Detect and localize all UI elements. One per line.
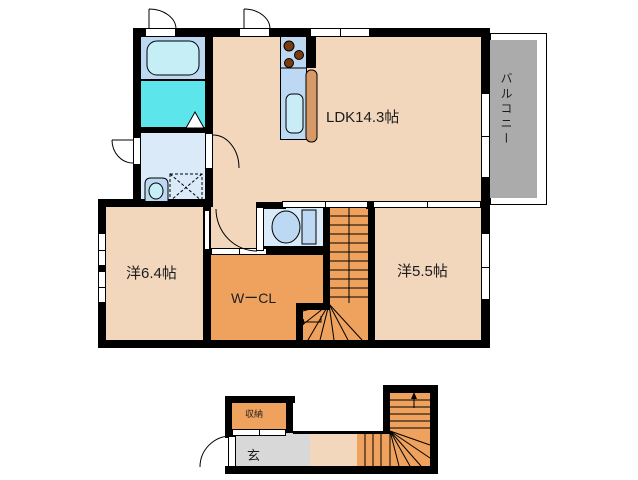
- window-ldk-balcony: [481, 93, 490, 178]
- window-west64-left-b: [98, 271, 106, 303]
- wall-west64-top: [98, 199, 213, 207]
- hall-1f: [310, 431, 357, 468]
- hall-2f: [211, 201, 256, 249]
- bath-floor: [141, 81, 205, 127]
- casement-arc-kitchen-icon: [244, 9, 270, 29]
- stairs-2f: [330, 207, 368, 340]
- sliding-door-west55: [373, 201, 481, 208]
- door-leaf-washroom: [205, 133, 213, 169]
- casement-window-washroom: [133, 137, 141, 165]
- window-ldk-top: [310, 28, 370, 37]
- room-bath: [141, 37, 205, 81]
- window-west64-left-a: [98, 233, 106, 266]
- line-tub-floor: [141, 79, 205, 81]
- stairs-1f-upper: [390, 393, 430, 468]
- casement-window-bath: [145, 28, 176, 37]
- wall-left-upper: [133, 28, 141, 206]
- door-arc-entrance: [200, 436, 231, 467]
- walk-in-closet-label: WーCL: [231, 288, 276, 308]
- wall-right: [481, 28, 490, 348]
- casement-window-kitchen: [239, 28, 270, 37]
- kitchen-counter: [280, 36, 307, 140]
- western-5-5-label: 洋5.5帖: [397, 260, 448, 281]
- line-1f-hall-top: [293, 431, 390, 434]
- casement-arc-bath-icon: [149, 9, 176, 29]
- wall-1f-right: [430, 385, 438, 474]
- wall-1f-stairblock-left: [383, 393, 390, 431]
- door-leaf-entrance: [228, 436, 236, 467]
- casement-arc-washroom-icon: [112, 140, 133, 163]
- slider-closet-1f: [232, 429, 286, 436]
- slider-hall-top: [282, 201, 368, 208]
- balcony-label: バルコニー: [498, 72, 515, 212]
- wall-winder-top: [296, 303, 330, 310]
- genkan-label: 玄: [247, 445, 260, 464]
- wall-1f-left: [225, 396, 232, 438]
- ldk-label: LDK14.3帖: [326, 106, 399, 127]
- doorway-west64: [204, 210, 210, 250]
- wall-stair-left: [323, 207, 330, 305]
- wall-stair-right: [368, 207, 375, 340]
- wall-bath-washroom: [133, 127, 205, 133]
- western-6-4-label: 洋6.4帖: [126, 262, 177, 283]
- room-toilet: [263, 207, 330, 248]
- wall-1f-storage-right: [286, 403, 293, 433]
- genkan-floor: [232, 433, 310, 468]
- wall-bath-ldk: [205, 28, 213, 206]
- wall-1f-storage-top: [225, 396, 295, 403]
- window-west55-right: [481, 233, 490, 300]
- wall-1f-bottom: [225, 466, 438, 474]
- wall-toilet-bottom: [263, 246, 330, 255]
- wall-bottom-2f: [98, 340, 490, 348]
- floor-plan: LDK14.3帖 バルコニー 洋6.4帖 WーCL 洋5.5帖 収納 玄: [0, 0, 638, 480]
- stairs-1f-lower: [357, 431, 390, 468]
- storage-label: 収納: [245, 407, 263, 420]
- door-leaf-toilet: [256, 207, 264, 251]
- room-washroom: [141, 133, 205, 201]
